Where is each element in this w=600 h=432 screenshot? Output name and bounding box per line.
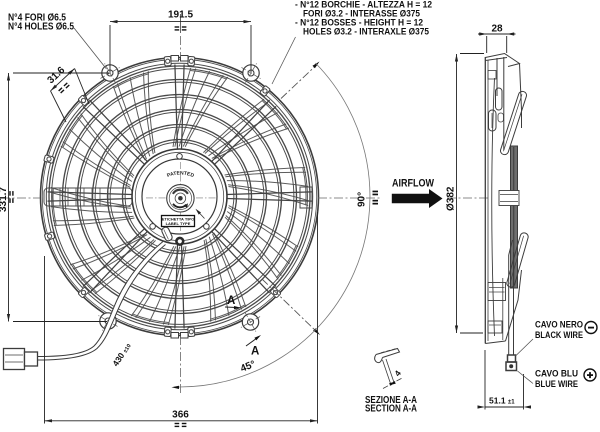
svg-text:SECTION A-A: SECTION A-A [365,404,417,415]
svg-text:28: 28 [491,24,503,35]
svg-text:366: 366 [172,410,189,421]
svg-text:CAVO NERO: CAVO NERO [535,320,583,331]
svg-text:HOLES Ø3.2 - INTERAXLE Ø375: HOLES Ø3.2 - INTERAXLE Ø375 [303,27,430,38]
svg-text:BLUE WIRE: BLUE WIRE [535,379,578,390]
svg-text:A: A [251,346,259,358]
svg-text:BLACK WIRE: BLACK WIRE [535,330,583,341]
svg-text:AIRFLOW: AIRFLOW [392,178,434,190]
svg-text:CAVO BLU: CAVO BLU [535,369,578,380]
svg-text:90°: 90° [357,192,368,207]
svg-text:331.7: 331.7 [0,187,9,212]
svg-text:191.5: 191.5 [168,10,193,21]
svg-text:N°4 HOLES Ø6.5: N°4 HOLES Ø6.5 [8,22,74,33]
svg-text:Ø382: Ø382 [446,186,457,211]
svg-text:LABEL TYPE: LABEL TYPE [166,221,191,226]
svg-text:A: A [227,295,235,307]
